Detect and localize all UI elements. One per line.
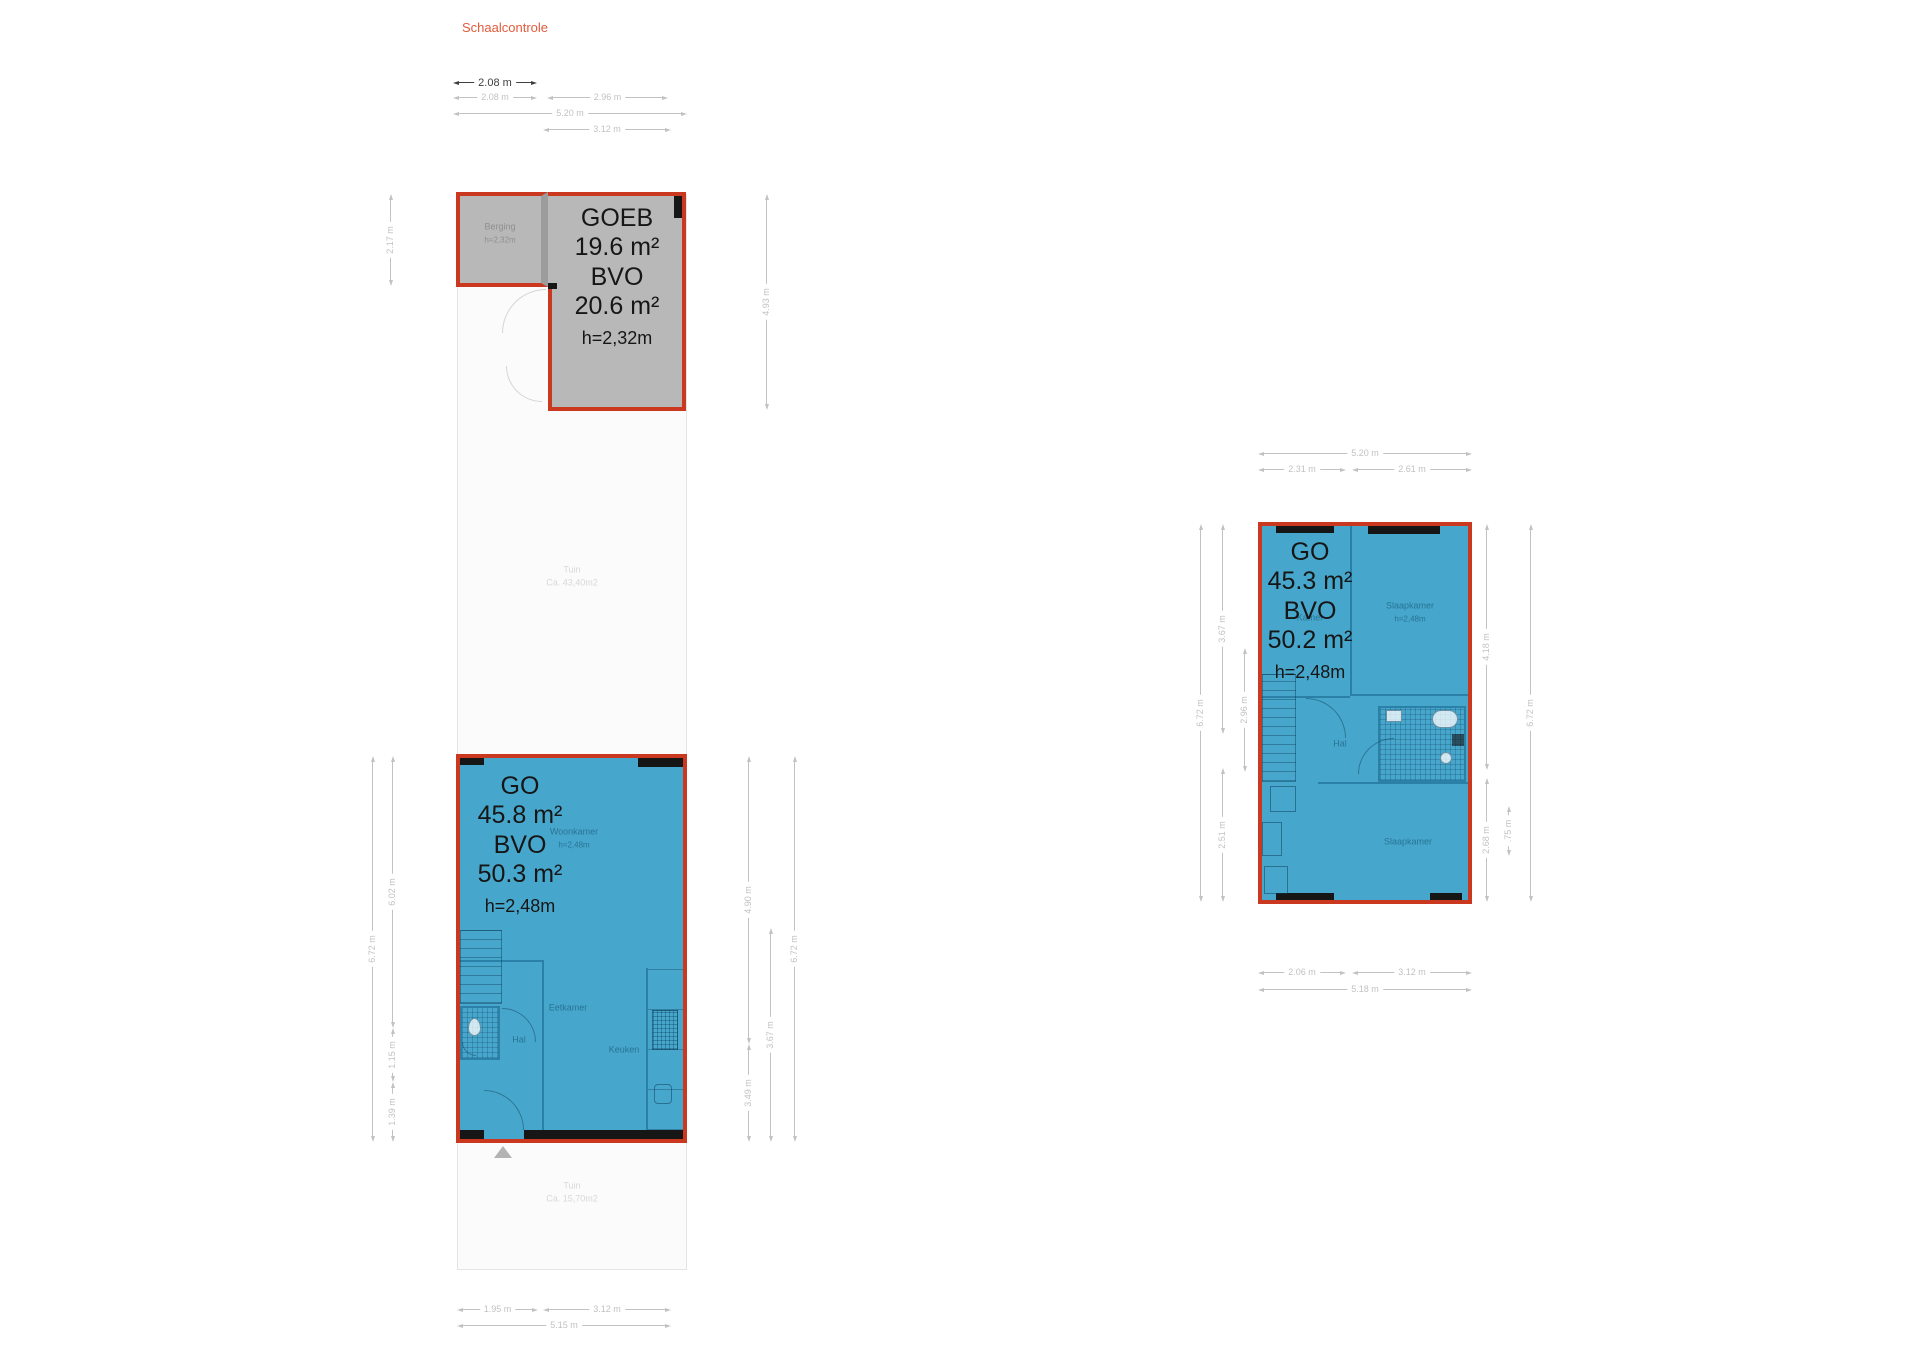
wall-segment [524,1130,683,1139]
right-floor-go-area: 45.3 m² [1262,567,1358,596]
scale-check-dimension: 2.08 m [453,78,537,87]
dim-left-bottom-total: 5.15 m [457,1321,671,1330]
room-label-eetkamer: Eetkamer [549,1001,588,1015]
room-label-keuken: Keuken [609,1043,640,1057]
dim-left-floor-right-top: 4.90 m [744,756,753,1044]
dim-right-floor-left-mid: 2.96 m [1240,648,1249,772]
storage-bvo-label: BVO [552,263,682,292]
shower [1452,734,1464,746]
stove [652,1010,678,1050]
door-arc [1358,738,1394,774]
toilet [1440,752,1452,764]
door-arc [484,1090,524,1130]
room-label-hal: Hal [512,1033,526,1047]
storage-goeb-area-value: 19.6 m² [552,233,682,262]
garden-top-label: Tuin Ca. 43,40m2 [546,563,598,588]
dim-left-top-seg1: 2.08 m [453,93,537,102]
left-floor-bvo-area: 50.3 m² [460,860,580,889]
storage-area-block: GOEB 19.6 m² BVO 20.6 m² h=2,32m [552,204,682,349]
dim-left-top-right: 3.12 m [543,125,671,134]
right-floor-go-label: GO [1262,538,1358,567]
floorplan-canvas: Schaalcontrole 2.08 m 2.08 m 2.96 m 5.20… [0,0,1920,1358]
right-floor-bvo-label: BVO [1262,597,1358,626]
storage-goeb-label: GOEB [552,204,682,233]
wall-segment [1276,526,1334,533]
wall-segment [460,1130,484,1139]
entrance-arrow-icon [494,1146,512,1158]
dim-left-floor-right-mid: 3.67 m [766,928,775,1142]
dim-right-floor-outer-right: 6.72 m [1526,524,1535,902]
storage-height-value: h=2,32m [552,328,682,349]
right-floor-area-block: GO 45.3 m² BVO 50.2 m² h=2,48m [1262,538,1358,683]
dim-left-top-total: 5.20 m [453,109,687,118]
closet [1264,866,1288,894]
door-arc [1306,698,1346,738]
dim-storage-left: 2.17 m [386,194,395,286]
left-floor-go-area: 45.8 m² [460,801,580,830]
toilet [468,1018,481,1036]
dim-left-bottom-seg1: 1.95 m [457,1305,538,1314]
bathtub [1432,710,1458,728]
dim-right-bottom-total: 5.18 m [1258,985,1472,994]
room-label-berging: Berging h=2,32m [484,220,515,246]
dim-left-floor-outer-left: 6.72 m [368,756,377,1142]
room-label-hal: Hal [1333,737,1347,751]
dim-left-floor-right-bottom: 3.49 m [744,1044,753,1142]
left-floor-area-block: GO 45.8 m² BVO 50.3 m² h=2,48m [460,772,580,917]
closet [1262,822,1282,856]
dim-right-bottom-seg2: 3.12 m [1352,968,1472,977]
dim-right-floor-left-bottom: 2.51 m [1218,768,1227,902]
dim-right-floor-outer-left: 6.72 m [1196,524,1205,902]
dim-left-floor-left-mid: 1.15 m [388,1028,397,1082]
dim-right-top-total: 5.20 m [1258,449,1472,458]
storage-bvo-area-value: 20.6 m² [552,292,682,321]
wall-segment [1368,526,1440,534]
wall-segment [638,758,683,767]
staircase [1262,674,1296,782]
interior-wall [1318,782,1468,784]
left-floor-go-label: GO [460,772,580,801]
dim-right-bottom-seg1: 2.06 m [1258,968,1346,977]
dim-left-floor-outer-right: 6.72 m [790,756,799,1142]
staircase [460,930,502,1004]
dim-right-floor-right-small: .75 m [1504,806,1513,856]
scale-check-label: Schaalcontrole [462,20,548,35]
left-floor-bvo-label: BVO [460,831,580,860]
interior-wall [542,960,544,1130]
washing-machine [1270,786,1296,812]
dim-left-bottom-seg2: 3.12 m [543,1305,671,1314]
dim-left-floor-left-top: 6.02 m [388,756,397,1028]
dim-left-top-seg2: 2.96 m [547,93,668,102]
dim-storage-right: 4.93 m [762,194,771,410]
dim-right-top-seg1: 2.31 m [1258,465,1346,474]
right-floor-height: h=2,48m [1262,662,1358,683]
wall-segment [1430,893,1462,900]
right-floor-bvo-area: 50.2 m² [1262,626,1358,655]
room-label-slaapkamer-1: Slaapkamer h=2,48m [1386,599,1434,625]
dim-left-floor-left-bottom: 1.39 m [388,1082,397,1142]
kitchen-sink [654,1084,672,1104]
interior-wall [1350,694,1468,696]
dim-right-floor-right-bottom: 2.68 m [1482,778,1491,902]
wall-segment [1276,893,1334,900]
sink [1386,710,1402,722]
garden-bottom-label: Tuin Ca. 15,70m2 [546,1179,598,1204]
dim-right-top-seg2: 2.61 m [1352,465,1472,474]
left-floorplan: GO 45.8 m² BVO 50.3 m² h=2,48m Woonkamer… [456,754,687,1143]
room-label-slaapkamer-2: Slaapkamer [1384,835,1432,849]
wall-segment [460,758,484,765]
dim-right-floor-left-top: 3.67 m [1218,524,1227,734]
left-floor-height: h=2,48m [460,896,580,917]
dim-right-floor-right-top: 4.18 m [1482,524,1491,770]
right-floorplan: Kamer GO 45.3 m² BVO 50.2 m² h=2,48m Sla… [1258,522,1472,904]
